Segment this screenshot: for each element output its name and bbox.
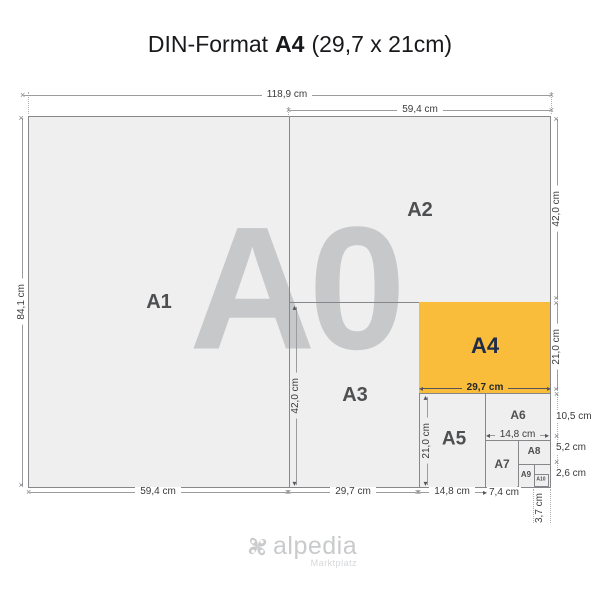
dim-end-marker-icon: × <box>554 115 559 124</box>
dim-a10-width-label: 3,7 cm <box>535 490 545 523</box>
logo-name: alpedia <box>273 535 357 558</box>
arrow-left-icon: ◂ <box>486 432 490 440</box>
dim-a4-width: ◂ 29,7 cm ▸ <box>420 382 550 394</box>
alpedia-logo: alpedia Marktplatz <box>246 535 357 568</box>
paper-label-a1: A1 <box>146 292 172 312</box>
arrow-up-icon: ▴ <box>293 304 297 312</box>
dim-a1-width: × 59,4 cm × <box>28 486 288 498</box>
arrow-up-icon: ▴ <box>424 394 428 402</box>
dim-label: 42,0 cm <box>291 373 301 419</box>
dim-a8-height-label: 5,2 cm <box>554 442 588 454</box>
dim-a0-width: × 118,9 cm × <box>22 89 552 101</box>
dim-end-marker-icon: × <box>19 114 24 123</box>
paper-label-a6: A6 <box>510 409 525 421</box>
paper-label-a4: A4 <box>471 335 499 357</box>
din-format-diagram: DIN-Format A4 (29,7 x 21cm) × 118,9 cm ×… <box>0 0 600 600</box>
dim-label: 42,0 cm <box>552 186 562 232</box>
paper-a0: A0 A1 A2 A3 A4 A5 A6 A7 A8 A9 A10 ▴ 42,0… <box>28 116 551 488</box>
dim-a4-height: × 21,0 cm × <box>551 301 563 392</box>
title-prefix: DIN-Format <box>148 31 268 58</box>
dim-a2-width: × 59,4 cm × <box>288 104 552 116</box>
dim-a3-height: ▴ 42,0 cm ▾ <box>290 305 302 487</box>
dim-a0-height: × 84,1 cm × <box>16 116 28 488</box>
arrow-left-icon: ◂ <box>419 385 423 393</box>
dim-a6-height-label: 10,5 cm <box>554 411 594 423</box>
dim-label: 21,0 cm <box>422 418 432 464</box>
dim-label: 84,1 cm <box>17 279 27 325</box>
alpedia-logo-icon <box>246 535 269 558</box>
dim-end-marker-icon: × <box>554 385 559 394</box>
paper-label-a5: A5 <box>442 430 466 449</box>
dim-end-marker-icon: × <box>554 432 559 441</box>
title-size: (29,7 x 21cm) <box>311 31 452 58</box>
arrow-right-icon: ▸ <box>483 489 487 497</box>
arrow-right-icon: ▸ <box>545 432 549 440</box>
logo-tagline: Marktplatz <box>273 558 357 568</box>
dim-a7-width-label: 7,4 cm <box>487 487 521 499</box>
paper-label-a8: A8 <box>528 447 541 457</box>
dim-end-marker-icon: × <box>549 91 554 100</box>
paper-label-a9: A9 <box>521 471 531 479</box>
dim-a10-height-label: 2,6 cm <box>554 468 588 480</box>
dim-a5-height: ▴ 21,0 cm ▾ <box>421 395 433 487</box>
dim-end-marker-icon: × <box>554 299 559 308</box>
dim-end-marker-icon: × <box>19 481 24 490</box>
dim-end-marker-icon: × <box>286 488 291 497</box>
dim-a5-width: × 14,8 cm ▸ <box>418 486 486 498</box>
dim-a3-width: × 29,7 cm × <box>288 486 418 498</box>
dim-label: 14,8 cm <box>429 487 475 497</box>
dim-end-marker-icon: × <box>20 91 25 100</box>
logo-text: alpedia Marktplatz <box>273 535 357 568</box>
page-title: DIN-Format A4 (29,7 x 21cm) <box>0 31 600 58</box>
paper-label-a2: A2 <box>407 200 433 220</box>
extension-line <box>550 489 551 523</box>
dim-a6-width: ◂ 14,8 cm ▸ <box>487 429 548 441</box>
dim-a2-height: × 42,0 cm × <box>551 117 563 301</box>
dim-end-marker-icon: × <box>26 488 31 497</box>
dim-label: 59,4 cm <box>135 487 181 497</box>
dim-label: 14,8 cm <box>495 430 541 440</box>
dim-label: 29,7 cm <box>330 487 376 497</box>
dim-label: 59,4 cm <box>397 105 443 115</box>
title-format: A4 <box>275 31 304 58</box>
dim-label: 29,7 cm <box>462 383 509 393</box>
dim-end-marker-icon: × <box>286 106 291 115</box>
dim-label: 118,9 cm <box>262 90 312 100</box>
paper-label-a3: A3 <box>342 385 368 405</box>
dim-label: 21,0 cm <box>552 324 562 370</box>
paper-label-a10: A10 <box>536 478 545 483</box>
dim-end-marker-icon: × <box>416 488 421 497</box>
paper-label-a7: A7 <box>494 458 509 470</box>
dim-end-marker-icon: × <box>554 458 559 467</box>
